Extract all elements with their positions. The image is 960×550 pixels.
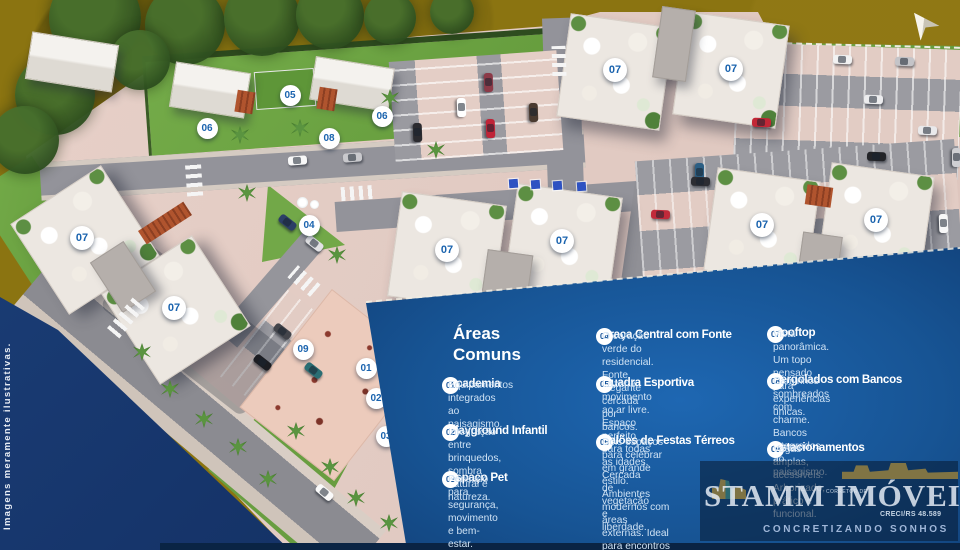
map-marker-07: 07 [70,226,94,250]
crosswalk [185,161,203,196]
car [866,151,885,161]
bottom-bar [160,543,960,550]
car [650,209,669,219]
handicap-parking-spot [577,182,587,192]
car [342,152,362,162]
watermark-corretor: CORRETOR DE [826,489,867,495]
car [894,56,913,66]
map-marker-07: 07 [162,296,186,320]
map-marker-07: 07 [719,57,743,81]
car [832,54,851,64]
disclaimer-text: Imagens meramente ilustrativas. [2,355,13,530]
watermark-creci: CRECI/RS 48.589 [880,511,941,518]
map-marker-09: 09 [293,339,314,360]
car [863,94,882,104]
car [690,176,709,186]
map-marker-01: 01 [356,358,377,379]
car [528,102,538,121]
handicap-parking-spot [509,179,519,189]
map-marker-08: 08 [319,128,340,149]
fountain-basin [310,200,319,209]
map-marker-06: 06 [372,106,393,127]
legend-item-desc: Pensado para segurança, movimento e bem-… [448,473,498,550]
watermark-tagline: CONCRETIZANDO SONHOS [763,524,949,535]
pergola [234,90,255,115]
map-marker-07: 07 [550,229,574,253]
map-marker-04: 04 [299,215,320,236]
crosswalk [551,46,566,76]
car [485,118,495,137]
pergola [316,87,337,112]
legend-item-desc: Dois espaços para celebrar em grande est… [602,436,674,550]
car [938,213,948,232]
car [751,117,770,127]
map-marker-07: 07 [603,58,627,82]
map-marker-07: 07 [750,213,774,237]
map-marker-06: 06 [197,118,218,139]
car [952,148,960,167]
map-marker-07: 07 [864,208,888,232]
map-marker-07: 07 [435,238,459,262]
fountain [297,197,308,208]
car [456,97,466,116]
car [483,72,493,91]
car [287,155,307,165]
handicap-parking-spot [531,180,541,190]
handicap-parking-spot [553,181,563,191]
crosswalk [341,185,376,201]
legend-title: Áreas Comuns [453,323,521,365]
watermark-brand: STAMM IMÓVEIS [704,478,958,514]
red-roof-block [805,184,834,207]
car [917,125,936,135]
site-plan-image: Áreas Comuns STAMM IMÓVEIS CORRETOR DE C… [0,0,960,550]
tree-canopy [110,30,170,90]
car [412,122,422,141]
map-marker-05: 05 [280,85,301,106]
